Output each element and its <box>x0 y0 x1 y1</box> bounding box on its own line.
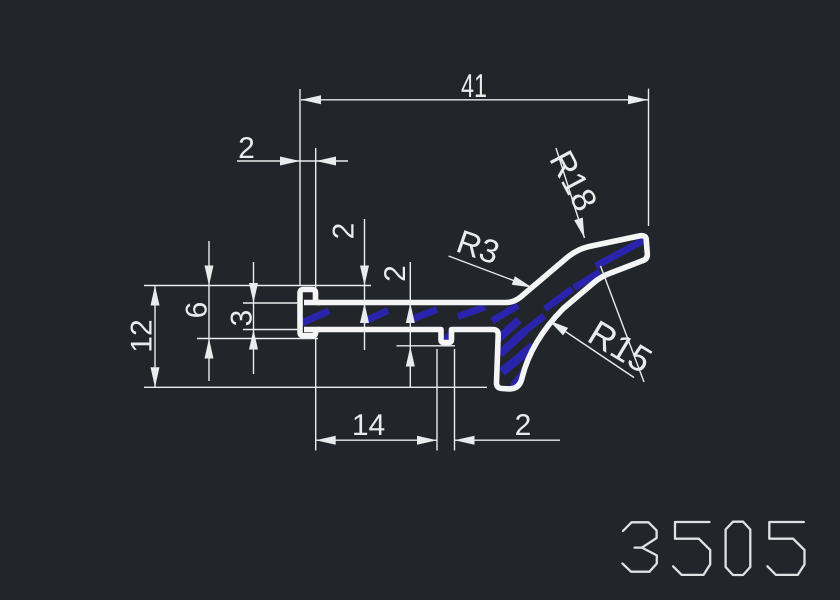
svg-text:3: 3 <box>226 310 259 327</box>
svg-text:6: 6 <box>181 302 214 319</box>
svg-text:2: 2 <box>238 132 255 165</box>
svg-text:14: 14 <box>352 409 385 442</box>
svg-text:41: 41 <box>461 67 487 104</box>
svg-text:2: 2 <box>515 409 532 442</box>
svg-text:2: 2 <box>328 223 361 240</box>
svg-text:12: 12 <box>125 319 158 352</box>
svg-text:2: 2 <box>379 265 412 282</box>
